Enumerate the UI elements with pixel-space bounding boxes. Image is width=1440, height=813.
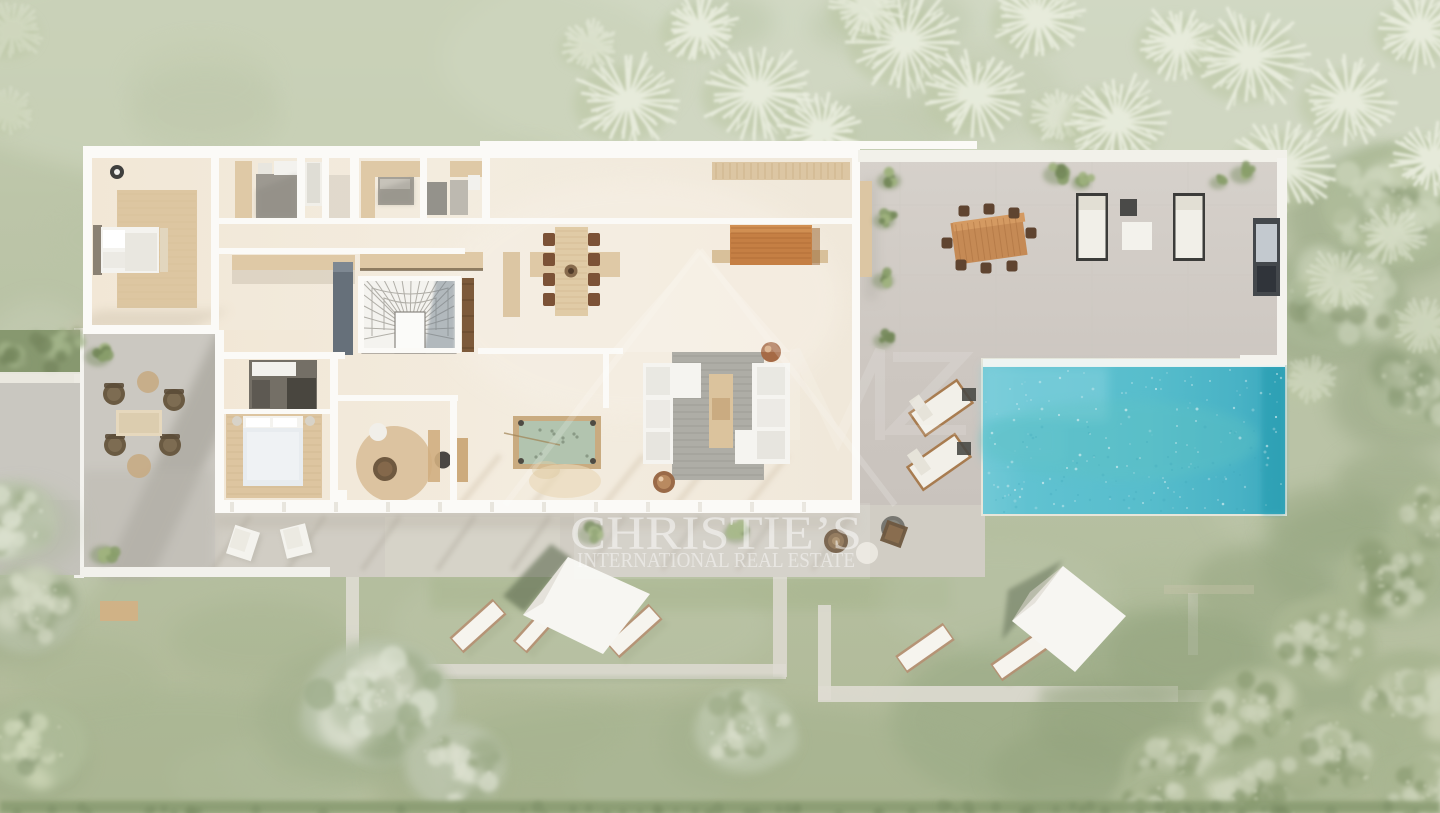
svg-text:INTERNATIONAL REAL ESTATE: INTERNATIONAL REAL ESTATE: [577, 548, 855, 572]
